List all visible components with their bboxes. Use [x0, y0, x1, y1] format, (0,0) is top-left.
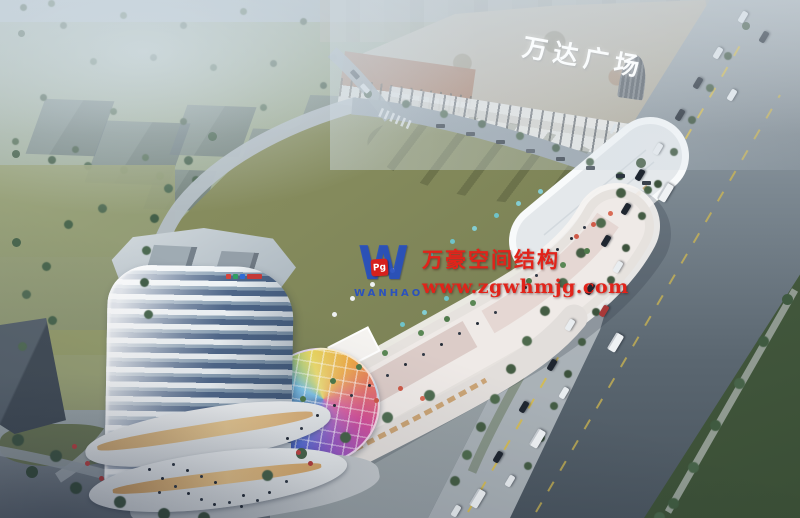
avenue-median-trees [742, 22, 750, 30]
podium-red-umbrellas [72, 444, 77, 449]
lawn-edge-trees [782, 294, 793, 305]
logo-text: WANHAO [354, 288, 423, 299]
red-umbrellas [574, 234, 579, 239]
logo-dot-red [226, 274, 231, 279]
watermark: W Pg WANHAO 万豪空间结构 www.zgwhmjg.com [356, 244, 629, 306]
tree-cluster [12, 238, 21, 247]
parked-cars-row [436, 124, 445, 128]
wanhao-logo: W Pg WANHAO [356, 244, 422, 306]
watermark-website: www.zgwhmjg.com [422, 276, 629, 298]
roadside-trees [208, 132, 217, 141]
avenue-sidewalk-trees [636, 158, 646, 168]
logo-text-bar [247, 274, 262, 279]
tower-brand-logo [226, 269, 272, 283]
logo-dot-green [233, 274, 238, 279]
rendering-canvas: 万达广场 W Pg WANHAO 万豪空间结构 www.zgwhmjg.com [0, 0, 800, 518]
tree-cluster [26, 466, 38, 478]
pedestrians [316, 414, 319, 417]
watermark-text-block: 万豪空间结构 www.zgwhmjg.com [422, 244, 629, 298]
pedestrians [148, 468, 151, 471]
watermark-company-name: 万豪空间结构 [422, 244, 629, 274]
logo-dot-blue [240, 274, 245, 279]
logo-badge: Pg [370, 258, 388, 276]
rooftop-terrace-trees [330, 378, 336, 384]
plaza-trees [296, 448, 307, 459]
